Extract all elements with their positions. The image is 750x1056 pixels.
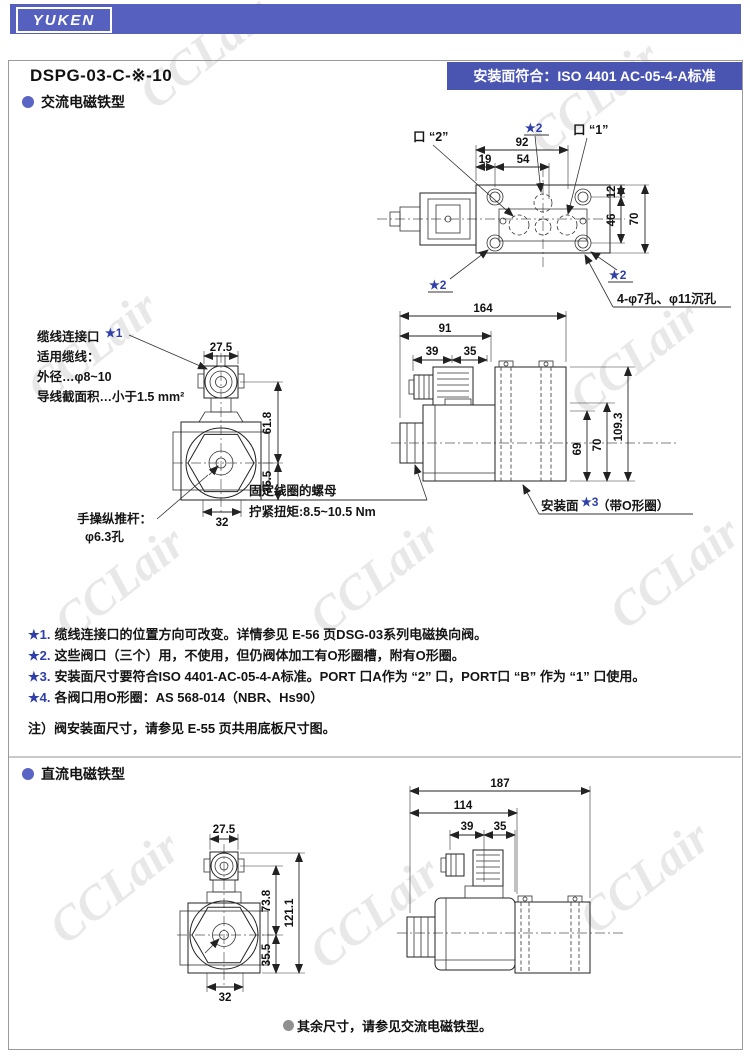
dim-61-8: 61.8	[262, 411, 274, 434]
top-view-valve: 92 19 54 12 46 70 口 “2” ★2	[377, 121, 731, 307]
footnote-3: ★3. 安装面尺寸要符合ISO 4401-AC-05-4-A标准。PORT 口A…	[28, 666, 733, 687]
footnote-3-star: ★3.	[28, 666, 51, 687]
footnote-2-star: ★2.	[28, 645, 51, 666]
dim-70-side: 70	[592, 439, 604, 452]
nut-line1: 固定线圈的螺母	[249, 483, 337, 498]
section-divider	[9, 756, 741, 758]
cable-line2: 外径…φ8~10	[36, 369, 112, 384]
dc-dim-187: 187	[490, 778, 509, 790]
section-ac: 交流电磁铁型	[22, 92, 125, 112]
footnote-4-star: ★4.	[28, 687, 51, 708]
front-dc-dimensions: 27.5 73.8 35.5 121.1 32	[207, 824, 305, 1004]
dc-dim-27-5: 27.5	[213, 824, 236, 836]
front-view-ac: 27.5 61.8 35.5 32 缆线连接口 ★1 适用缆线： 外径…φ8~1…	[36, 326, 283, 544]
bolt-holes-note: 4-φ7孔、φ11沉孔	[617, 291, 717, 306]
dim-39: 39	[426, 346, 439, 358]
dim-12: 12	[606, 186, 618, 199]
yuken-logo: YUKEN	[16, 7, 112, 33]
footnote-2-text: 这些阀口（三个）用，不使用，但仍阀体加工有O形圈槽，附有O形圈。	[55, 645, 465, 666]
dc-dim-35-5: 35.5	[261, 943, 273, 966]
cable-title: 缆线连接口	[37, 329, 100, 344]
dim-69: 69	[572, 443, 584, 456]
cable-line1: 适用缆线：	[37, 349, 100, 364]
cable-connection-label: 缆线连接口 ★1 适用缆线： 外径…φ8~10 导线截面积…小于1.5 mm²	[36, 326, 207, 404]
footnote-1: ★1. 缆线连接口的位置方向可改变。详情参见 E-56 页DSG-03系列电磁换…	[28, 624, 733, 645]
side-view-ac: 164 91 39 35 69 70 109.3 固定线圈的螺母	[247, 303, 693, 519]
datasheet-page: CCLair CCLair CCLair CCLair CCLair CCLai…	[0, 0, 750, 1056]
footnote-4: ★4. 各阀口用O形圈：AS 568-014（NBR、Hs90）	[28, 687, 733, 708]
dim-32: 32	[216, 517, 229, 529]
front-view-dc: 27.5 73.8 35.5 121.1 32	[177, 824, 305, 1004]
port-1-label: 口 “1”	[573, 123, 608, 137]
star2-top-label: ★2	[525, 121, 543, 135]
section-ac-title: 交流电磁铁型	[41, 92, 125, 112]
dim-91: 91	[439, 323, 452, 335]
footnote-4-text: 各阀口用O形圈：AS 568-014（NBR、Hs90）	[55, 687, 324, 708]
push-rod-label: 手操纵推杆： φ6.3孔	[77, 475, 208, 544]
dc-dim-35: 35	[494, 821, 507, 833]
mount-post: （带O形圈）	[597, 498, 669, 513]
dim-109-3: 109.3	[613, 413, 625, 442]
dim-27-5: 27.5	[210, 342, 233, 354]
dc-dim-32: 32	[219, 992, 232, 1004]
din-connector-dc	[441, 850, 503, 898]
star2-br-label: ★2	[609, 268, 627, 282]
dim-70: 70	[629, 213, 641, 226]
dim-46: 46	[606, 214, 618, 227]
model-number: DSPG-03-C-※-10	[30, 66, 172, 86]
dim-19: 19	[479, 154, 492, 166]
mounting-note: 注）阀安装面尺寸，请参见 E-55 页共用底板尺寸图。	[28, 718, 336, 737]
blue-bullet-icon	[22, 96, 34, 108]
side-view-dc: 187 114 39 35	[397, 778, 625, 973]
side-dc-dimensions: 187 114 39 35	[410, 778, 590, 913]
mount-pre: 安装面	[541, 498, 579, 513]
footnote-3-text: 安装面尺寸要符合ISO 4401-AC-05-4-A标准。PORT 口A作为 “…	[55, 666, 646, 687]
nut-line2: 拧紧扭矩:8.5~10.5 Nm	[249, 504, 376, 519]
cable-star1: ★1	[105, 326, 123, 340]
dc-dim-39: 39	[461, 821, 474, 833]
footnote-2: ★2. 这些阀口（三个）用，不使用，但仍阀体加工有O形圈槽，附有O形圈。	[28, 645, 733, 666]
dim-164: 164	[473, 303, 493, 315]
dim-35: 35	[464, 346, 477, 358]
top-view-dimensions: 92 19 54 12 46 70	[476, 137, 649, 253]
dc-footnote: 其余尺寸，请参见交流电磁铁型。	[283, 1016, 492, 1035]
cable-line3: 导线截面积…小于1.5 mm²	[37, 389, 184, 404]
mounting-surface-label: 安装面 ★3 （带O形圈）	[523, 485, 693, 514]
yuken-logo-text: YUKEN	[33, 12, 96, 29]
din-connector	[409, 367, 473, 405]
dc-dim-121-1: 121.1	[284, 898, 296, 927]
gray-bullet-icon	[283, 1020, 294, 1031]
dim-54: 54	[517, 154, 530, 166]
footnote-1-text: 缆线连接口的位置方向可改变。详情参见 E-56 页DSG-03系列电磁换向阀。	[55, 624, 488, 645]
dc-dim-114: 114	[454, 800, 473, 812]
footnote-1-star: ★1.	[28, 624, 51, 645]
dc-footnote-text: 其余尺寸，请参见交流电磁铁型。	[297, 1016, 492, 1035]
pushrod-line1: 手操纵推杆：	[77, 511, 152, 526]
star2-bl-label: ★2	[429, 278, 447, 292]
dc-drawing: 27.5 73.8 35.5 121.1 32	[25, 770, 745, 1010]
footnotes: ★1. 缆线连接口的位置方向可改变。详情参见 E-56 页DSG-03系列电磁换…	[28, 624, 733, 708]
ac-drawing: 92 19 54 12 46 70 口 “2” ★2	[25, 115, 745, 545]
mounting-standard-label: 安装面符合：ISO 4401 AC-05-4-A标准	[447, 62, 742, 90]
dim-92: 92	[516, 137, 529, 149]
top-view-labels: 口 “2” ★2 口 “1” ★2 ★2 4-φ7孔、φ11沉孔	[413, 121, 731, 307]
pushrod-line2: φ6.3孔	[85, 530, 124, 544]
top-banner: YUKEN	[10, 4, 741, 34]
coil-nut-label: 固定线圈的螺母 拧紧扭矩:8.5~10.5 Nm	[247, 465, 427, 519]
port-2-label: 口 “2”	[413, 130, 448, 144]
dc-dim-73-8: 73.8	[261, 889, 273, 912]
